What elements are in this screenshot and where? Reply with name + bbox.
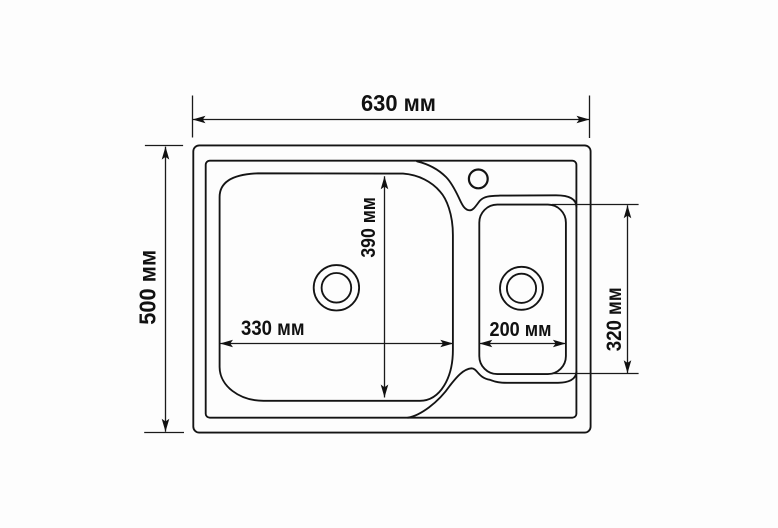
svg-text:200 мм: 200 мм	[490, 319, 552, 341]
svg-text:320 мм: 320 мм	[603, 287, 626, 351]
svg-text:390 мм: 390 мм	[357, 197, 380, 258]
svg-text:500 мм: 500 мм	[135, 250, 161, 325]
svg-text:330 мм: 330 мм	[241, 317, 305, 340]
svg-text:630 мм: 630 мм	[361, 90, 436, 116]
